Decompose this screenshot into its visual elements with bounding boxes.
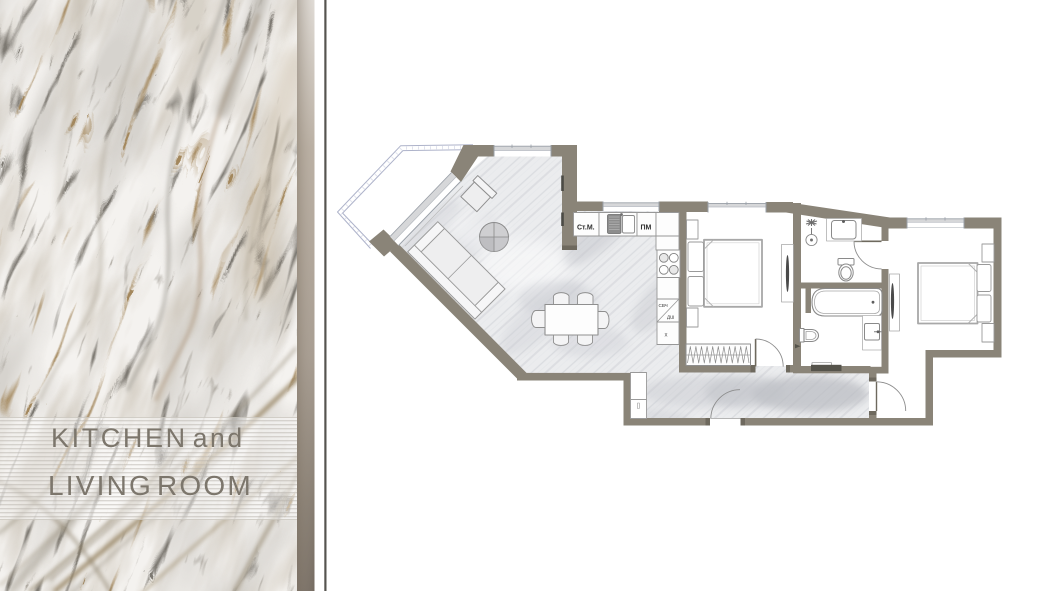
svg-text:ПМ: ПМ (641, 225, 652, 232)
svg-text:СВЧ: СВЧ (659, 303, 668, 308)
svg-text:х: х (665, 333, 668, 339)
svg-text:LIVINGROOM: LIVINGROOM (48, 470, 253, 501)
svg-text:ДШ: ДШ (667, 315, 674, 320)
svg-text:Ст.М.: Ст.М. (577, 225, 595, 232)
svg-text:KITCHENand: KITCHENand (51, 423, 245, 453)
